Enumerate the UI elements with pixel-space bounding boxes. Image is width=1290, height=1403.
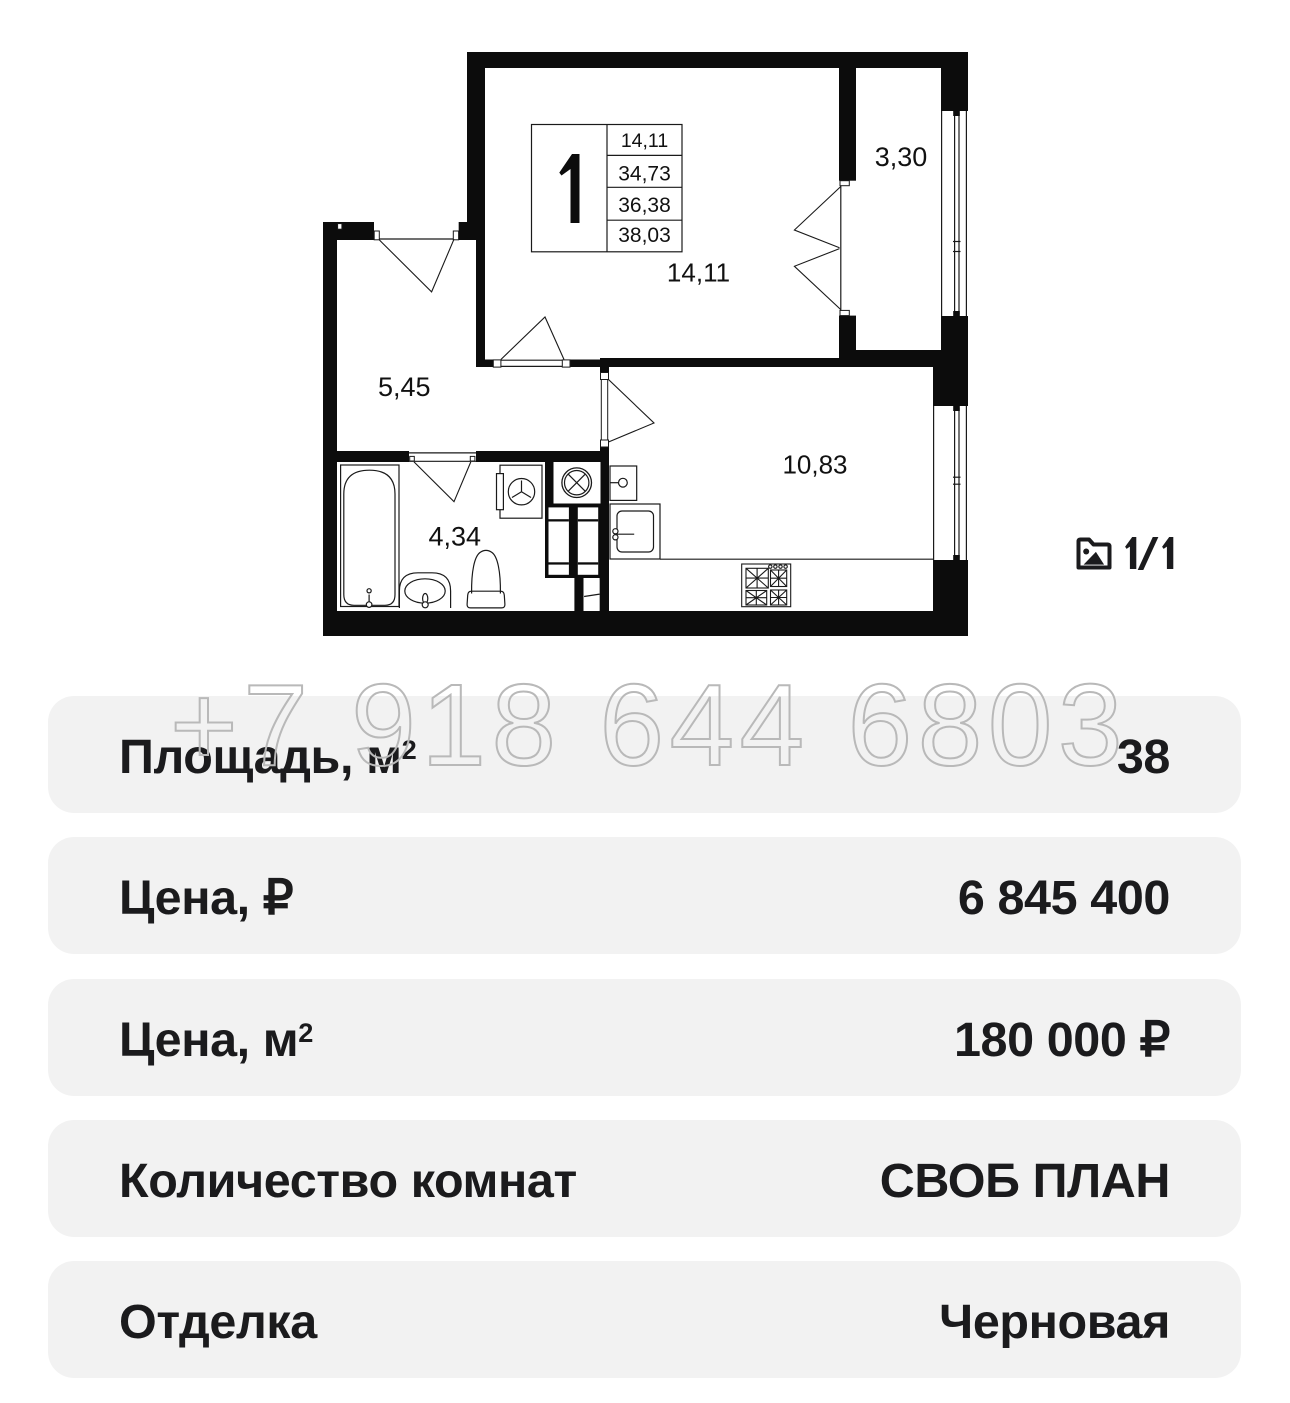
svg-text:10,83: 10,83 [782, 449, 847, 479]
svg-text:14,11: 14,11 [621, 130, 668, 152]
svg-text:5,45: 5,45 [378, 372, 431, 402]
svg-text:34,73: 34,73 [618, 163, 671, 186]
svg-text:3,30: 3,30 [875, 142, 928, 172]
svg-text:38,03: 38,03 [618, 224, 671, 247]
svg-text:14,11: 14,11 [667, 257, 730, 287]
svg-text:36,38: 36,38 [618, 194, 671, 217]
svg-text:4,34: 4,34 [429, 522, 482, 552]
